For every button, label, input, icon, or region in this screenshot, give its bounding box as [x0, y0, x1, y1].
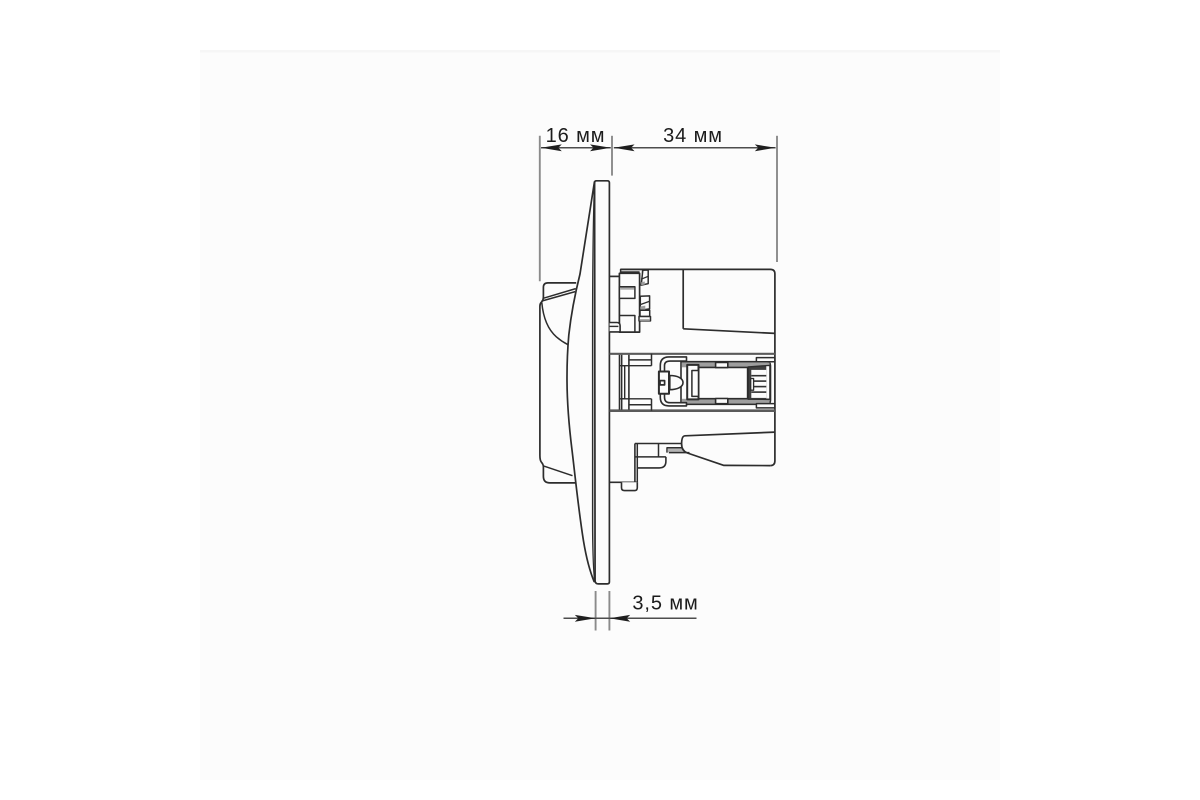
svg-text:16 мм: 16 мм	[546, 125, 606, 147]
svg-text:3,5 мм: 3,5 мм	[632, 592, 698, 614]
svg-text:34 мм: 34 мм	[663, 125, 723, 147]
